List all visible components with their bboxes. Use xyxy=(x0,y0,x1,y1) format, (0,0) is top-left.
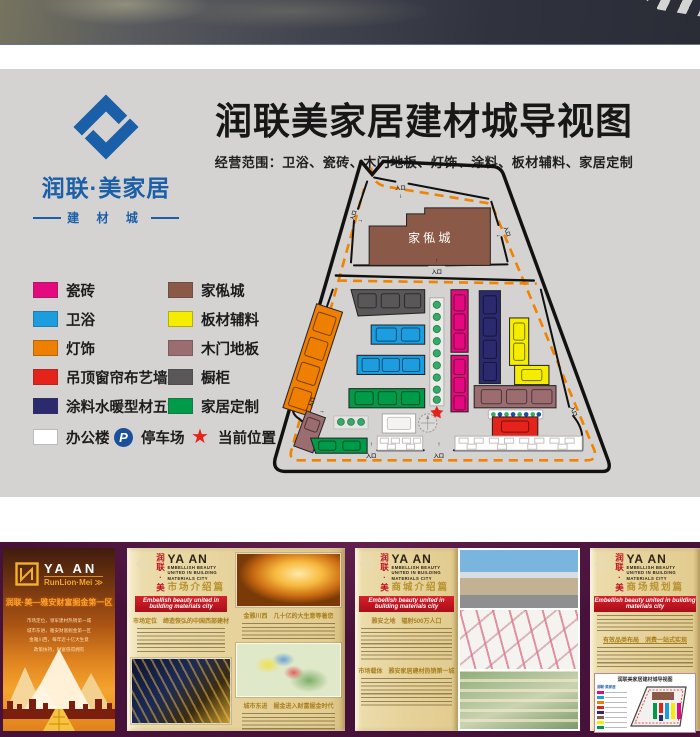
panel2-heading-1: 市场定位 缔造恢弘的中国西部建材盛景 xyxy=(133,616,229,625)
trees xyxy=(433,301,440,403)
brand-diamond-embossed-icon xyxy=(135,555,153,573)
panel4-heading-1: 有效品类布局 消费一站式实现 xyxy=(592,635,698,644)
legend-swatch xyxy=(33,398,58,414)
minimap-graphic xyxy=(629,685,691,729)
body-text-placeholder xyxy=(597,647,694,669)
svg-text:入口: 入口 xyxy=(434,453,444,459)
block-board-1 xyxy=(510,318,529,365)
legend-item: 家居定制 xyxy=(168,397,259,415)
legend-item: 橱柜 xyxy=(168,368,230,386)
block-board-2 xyxy=(515,365,549,384)
directory-poster: 润联·美家居 建 材 城 润联美家居建材城导视图 经营范围：卫浴、瓷砖、木门地板… xyxy=(0,69,700,497)
block-ceiling-curtain xyxy=(492,417,537,436)
minimap-legend: 润联·美家居 xyxy=(597,685,627,730)
svg-text:↓: ↓ xyxy=(399,194,402,200)
legend-item-parking: P停车场 xyxy=(114,428,185,446)
svg-text:入口: 入口 xyxy=(502,226,511,238)
brand-diamond-embossed-icon xyxy=(359,555,377,573)
panel2-heading-3: 城市东进 掘金进入财富掘金时代 xyxy=(238,701,339,710)
panel3-section-title: 商城介绍篇 xyxy=(392,583,450,593)
crosswalk-stripes xyxy=(586,0,700,38)
site-map: 家俬城 xyxy=(253,157,657,491)
panel1-headline: 润联·美—雅安财富掘金第一区 xyxy=(3,597,115,608)
legend-item: 家俬城 xyxy=(168,281,245,299)
mini-directory-map: 润联美家居建材城导视图 润联·美家居 xyxy=(594,673,696,733)
tagline-text: 建 材 城 xyxy=(67,209,145,226)
tagline-rule-right xyxy=(151,217,179,219)
panel4-section-title: 商场规划篇 xyxy=(627,583,685,593)
panel1-title-en: YA AN xyxy=(44,561,103,576)
legend-swatch xyxy=(33,340,58,356)
body-text-placeholder xyxy=(242,623,334,639)
route-map-image xyxy=(460,610,578,668)
svg-text:↑: ↑ xyxy=(370,442,373,448)
svg-text:→: → xyxy=(357,218,363,224)
legend-item: 灯饰 xyxy=(33,339,95,357)
panel1-subtitle: RunLion·Mei ≫ xyxy=(44,576,103,587)
svg-text:↑: ↑ xyxy=(437,442,440,448)
planning-map-image xyxy=(236,643,341,697)
panel2-section-title: 市场介绍篇 xyxy=(168,583,226,593)
brand-logo-block: 润联·美家居 建 材 城 xyxy=(22,91,190,226)
panel-header: 润联·美 YA AN EMBELLISH BEAUTY UNITED IN BU… xyxy=(355,548,458,593)
poster-page: 润联·美家居 建 材 城 润联美家居建材城导视图 经营范围：卫浴、瓷砖、木门地板… xyxy=(0,0,700,737)
legend-swatch xyxy=(168,398,193,414)
minimap-title: 润联美家居建材城导视图 xyxy=(597,676,693,683)
brochure-panel-cover: YA AN RunLion·Mei ≫ 润联·美—雅安财富掘金第一区 市场定位，… xyxy=(3,548,115,731)
tagline-rule-left xyxy=(33,217,61,219)
brand-diamond-icon xyxy=(70,91,142,163)
panel2-heading-2: 金雅川西 几十亿的大生意等着您 xyxy=(238,611,339,620)
legend-swatch xyxy=(168,282,193,298)
brochure-panel-mall-intro: 润联·美 YA AN EMBELLISH BEAUTY UNITED IN BU… xyxy=(355,548,580,731)
divider-road xyxy=(336,276,534,281)
street-photo-strip xyxy=(0,0,700,45)
body-text-placeholder xyxy=(597,615,694,631)
brand-tagline: 建 材 城 xyxy=(22,209,190,226)
legend-swatch xyxy=(168,369,193,385)
brand-en: YA AN xyxy=(168,553,226,565)
svg-text:入口: 入口 xyxy=(366,453,376,459)
parking-icon: P xyxy=(114,428,133,447)
svg-text:→: → xyxy=(319,409,325,415)
brand-name: 润联·美家居 xyxy=(22,169,190,203)
golden-city-photo xyxy=(236,553,341,607)
brochure-panel-market-intro: 润联·美 YA AN EMBELLISH BEAUTY UNITED IN BU… xyxy=(127,548,345,731)
legend-item: 木门地板 xyxy=(168,339,259,357)
compass xyxy=(419,414,437,432)
red-banner: Embellish beauty united in building mate… xyxy=(135,596,227,612)
body-text-placeholder xyxy=(361,678,452,708)
panel-header: 润联·美 YA AN EMBELLISH BEAUTY UNITED IN BU… xyxy=(590,548,700,593)
current-location-star-icon: ★ xyxy=(190,428,210,446)
legend-item: 板材辅料 xyxy=(168,310,259,328)
legend-swatch xyxy=(33,311,58,327)
mall-exterior-photo xyxy=(460,550,578,608)
runlianmei-square-icon xyxy=(15,562,39,586)
panel-header: 润联·美 YA AN EMBELLISH BEAUTY UNITED IN BU… xyxy=(131,548,231,593)
furniture-city-label: 家俬城 xyxy=(408,230,453,245)
svg-text:↑: ↑ xyxy=(435,258,438,264)
brochure-panel-plan: 润联·美 YA AN EMBELLISH BEAUTY UNITED IN BU… xyxy=(590,548,700,731)
panel3-heading-2: 市场载体 雅安家居建材热销第一城 xyxy=(357,666,456,675)
pyramids-graphic xyxy=(3,639,115,731)
body-text-placeholder xyxy=(242,713,334,731)
legend-swatch xyxy=(168,340,193,356)
panel3-photo-column xyxy=(458,548,580,731)
legend-swatch xyxy=(33,282,58,298)
legend-swatch xyxy=(33,369,58,385)
poster-title: 润联美家居建材城导视图 xyxy=(178,91,670,145)
legend-item: 卫浴 xyxy=(33,310,95,328)
legend-item: 瓷砖 xyxy=(33,281,95,299)
legend-item: 吊顶窗帘布艺墙纸 xyxy=(33,368,182,386)
svg-text:←: ← xyxy=(495,233,501,239)
legend-swatch xyxy=(33,429,58,445)
brand-cn-vertical: 润联·美 xyxy=(156,553,165,593)
panel3-heading-1: 雅安之地 辐射500万人口 xyxy=(357,616,456,625)
block-wood-door xyxy=(474,386,556,408)
highway-night-photo xyxy=(131,658,231,724)
legend-swatch xyxy=(168,311,193,327)
legend-item: 涂料水暖型材五金 xyxy=(33,397,182,415)
svg-text:入口: 入口 xyxy=(395,186,405,192)
brochure-strip: YA AN RunLion·Mei ≫ 润联·美—雅安财富掘金第一区 市场定位，… xyxy=(0,542,700,737)
svg-text:入口: 入口 xyxy=(432,270,442,276)
red-banner: Embellish beauty united in building mate… xyxy=(359,596,454,612)
legend-item-office: 办公楼 xyxy=(33,428,110,446)
block-paint-plumbing xyxy=(479,291,500,384)
body-text-placeholder xyxy=(137,628,225,654)
red-banner: Embellish beauty united in building mate… xyxy=(594,596,696,612)
body-text-placeholder xyxy=(361,628,452,662)
brand-diamond-embossed-icon xyxy=(594,555,612,573)
trees-bottom xyxy=(337,419,364,426)
aerial-rendering-image xyxy=(460,671,578,729)
